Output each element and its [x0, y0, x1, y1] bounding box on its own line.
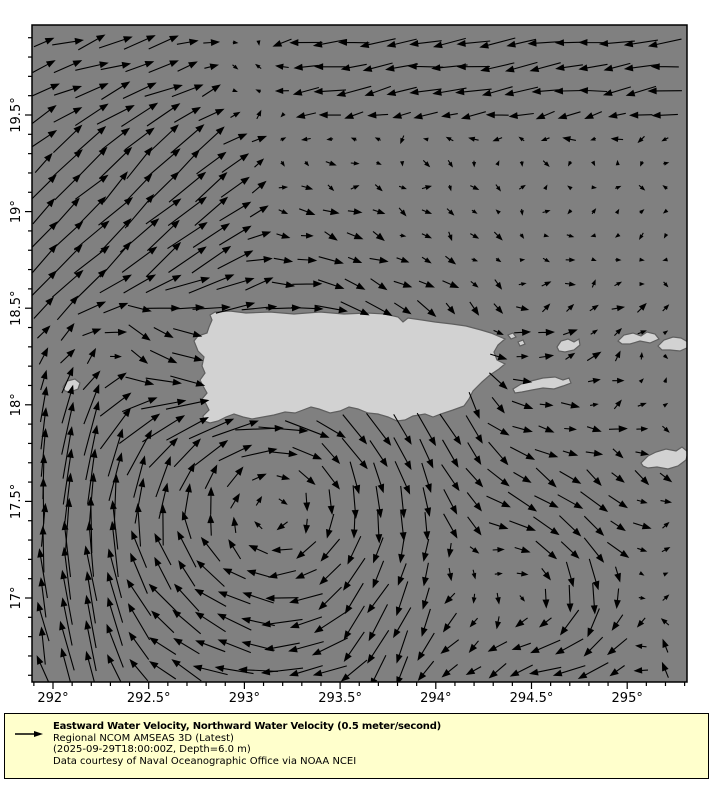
- x-tick-label: 294.5°: [510, 691, 554, 706]
- x-tick-label: 294°: [420, 691, 451, 706]
- x-tick-label: 292.5°: [127, 691, 171, 706]
- y-tick-label: 17.5°: [9, 484, 24, 519]
- legend-text-block: Eastward Water Velocity, Northward Water…: [53, 721, 441, 767]
- x-tick-label: 293.5°: [318, 691, 362, 706]
- legend-courtesy-line: Data courtesy of Naval Oceanographic Off…: [53, 756, 441, 768]
- y-tick-label: 19°: [9, 200, 24, 223]
- legend-box: Eastward Water Velocity, Northward Water…: [4, 713, 709, 779]
- y-tick-label: 18.5°: [9, 290, 24, 325]
- x-tick-label: 295°: [612, 691, 643, 706]
- legend-model-line: Regional NCOM AMSEAS 3D (Latest): [53, 733, 441, 745]
- reference-arrow-icon: [14, 724, 44, 743]
- y-tick-label: 17°: [9, 586, 24, 609]
- map-figure: 292°292.5°293°293.5°294°294.5°295°17°17.…: [0, 0, 720, 800]
- y-tick-label: 19.5°: [9, 97, 24, 132]
- y-tick-label: 18°: [9, 393, 24, 416]
- island-puerto-rico: [194, 311, 505, 423]
- ocean-current-map-page: 292°292.5°293°293.5°294°294.5°295°17°17.…: [0, 0, 720, 800]
- legend-timestamp-line: (2025-09-29T18:00:00Z, Depth=6.0 m): [53, 744, 441, 756]
- legend-title: Eastward Water Velocity, Northward Water…: [53, 721, 441, 733]
- x-tick-label: 293°: [229, 691, 260, 706]
- x-tick-label: 292°: [37, 691, 68, 706]
